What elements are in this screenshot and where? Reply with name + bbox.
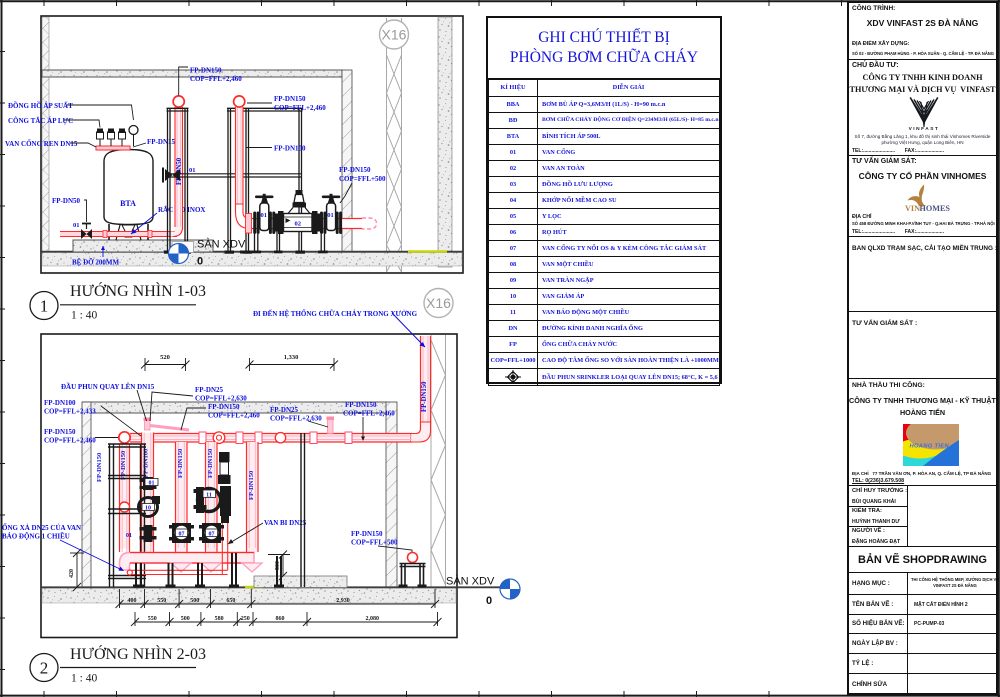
svg-text:520: 520 — [160, 354, 170, 361]
svg-text:01: 01 — [126, 533, 132, 539]
svg-text:500: 500 — [181, 616, 190, 622]
svg-text:VIN: VIN — [905, 204, 920, 213]
svg-text:COP=FFL+2,433: COP=FFL+2,433 — [44, 408, 96, 416]
svg-text:1 : 40: 1 : 40 — [71, 310, 97, 322]
svg-text:HOANG TIEN: HOANG TIEN — [910, 444, 950, 450]
svg-text:SÀN XDV: SÀN XDV — [197, 238, 246, 251]
svg-text:HOMES: HOMES — [920, 204, 951, 213]
svg-text:550: 550 — [148, 616, 157, 622]
svg-text:VAN CỔNG REN DN15: VAN CỔNG REN DN15 — [5, 140, 78, 148]
svg-text:FP-DN150: FP-DN150 — [248, 471, 255, 500]
svg-text:BÁO ĐỘNG 1 CHIỀU: BÁO ĐỘNG 1 CHIỀU — [2, 533, 70, 541]
svg-text:FP-DN15: FP-DN15 — [147, 138, 175, 146]
svg-text:400: 400 — [128, 598, 137, 604]
svg-text:COP=FFL+2,460: COP=FFL+2,460 — [274, 104, 326, 112]
svg-text:1 : 40: 1 : 40 — [71, 673, 97, 685]
svg-text:500: 500 — [275, 561, 281, 570]
svg-text:FP-DN150: FP-DN150 — [207, 449, 214, 478]
svg-text:2,080: 2,080 — [366, 616, 380, 622]
svg-text:ĐẦU PHUN QUAY LÊN DN15: ĐẦU PHUN QUAY LÊN DN15 — [61, 383, 155, 391]
svg-text:1: 1 — [40, 297, 49, 316]
svg-text:FP-DN25: FP-DN25 — [195, 386, 223, 394]
svg-text:FP-DN25: FP-DN25 — [270, 406, 298, 414]
svg-text:ỐNG XẢ DN25 CỦA VAN: ỐNG XẢ DN25 CỦA VAN — [2, 524, 81, 532]
svg-text:420: 420 — [69, 569, 75, 578]
svg-text:01: 01 — [189, 167, 196, 174]
svg-text:HƯỚNG NHÌN 2-03: HƯỚNG NHÌN 2-03 — [70, 644, 206, 663]
svg-text:COP=FFL+2,460: COP=FFL+2,460 — [190, 75, 242, 83]
svg-text:01: 01 — [149, 481, 155, 487]
svg-text:0: 0 — [486, 595, 492, 607]
svg-text:COP=FFL+2,460: COP=FFL+2,460 — [44, 437, 96, 445]
svg-text:BTA: BTA — [120, 199, 136, 208]
svg-text:ĐỒNG HỒ ÁP SUẤT: ĐỒNG HỒ ÁP SUẤT — [8, 102, 73, 110]
svg-text:COP=FFL+2,460: COP=FFL+2,460 — [208, 412, 260, 420]
svg-text:860: 860 — [276, 616, 285, 622]
svg-text:COP=FFL+500: COP=FFL+500 — [351, 539, 398, 547]
svg-text:02: 02 — [295, 221, 302, 228]
svg-text:FP-DN150: FP-DN150 — [177, 449, 184, 478]
svg-text:550: 550 — [157, 598, 166, 604]
svg-text:2,930: 2,930 — [336, 598, 350, 604]
svg-text:1,330: 1,330 — [284, 354, 299, 361]
svg-text:HƯỚNG NHÌN 1-03: HƯỚNG NHÌN 1-03 — [70, 281, 206, 300]
svg-text:07: 07 — [209, 532, 215, 538]
svg-text:BỆ ĐỠ 200MM: BỆ ĐỠ 200MM — [72, 259, 119, 267]
svg-text:FP-DN100: FP-DN100 — [44, 399, 76, 407]
svg-text:X16: X16 — [382, 27, 407, 43]
svg-text:FP-DN100: FP-DN100 — [143, 449, 150, 478]
svg-text:580: 580 — [215, 616, 224, 622]
svg-text:FP-DN150: FP-DN150 — [351, 530, 383, 538]
svg-text:VINFAST: VINFAST — [909, 126, 940, 131]
svg-text:01: 01 — [327, 212, 334, 219]
svg-text:01: 01 — [261, 212, 268, 219]
svg-text:COP=FFL+2,630: COP=FFL+2,630 — [270, 415, 322, 423]
svg-text:COP=FFL+2,630: COP=FFL+2,630 — [195, 395, 247, 403]
svg-text:X16: X16 — [426, 295, 451, 311]
svg-text:FP-DN150: FP-DN150 — [96, 453, 103, 482]
svg-text:11: 11 — [206, 493, 212, 499]
svg-text:10: 10 — [145, 506, 151, 512]
svg-text:500: 500 — [190, 598, 199, 604]
svg-text:250: 250 — [241, 616, 250, 622]
svg-text:CÔNG TẮC ÁP LỰC: CÔNG TẮC ÁP LỰC — [8, 117, 73, 125]
svg-text:FP-DN150: FP-DN150 — [345, 401, 377, 409]
svg-text:07: 07 — [179, 532, 185, 538]
svg-text:2: 2 — [40, 659, 49, 678]
svg-text:FP-DN150: FP-DN150 — [190, 67, 222, 75]
svg-text:FP-DN150: FP-DN150 — [339, 166, 371, 174]
svg-text:0: 0 — [197, 256, 203, 268]
svg-text:COP=FFL+2,460: COP=FFL+2,460 — [343, 410, 395, 418]
svg-text:650: 650 — [226, 598, 235, 604]
svg-text:FP-DN150: FP-DN150 — [421, 381, 428, 412]
svg-text:FP-DN50: FP-DN50 — [52, 197, 80, 205]
svg-text:FP-DN150: FP-DN150 — [274, 145, 306, 153]
svg-text:01: 01 — [73, 222, 80, 229]
svg-text:FP-DN150: FP-DN150 — [44, 428, 76, 436]
svg-text:COP=FFL+500: COP=FFL+500 — [339, 175, 386, 183]
svg-text:FP-DN150: FP-DN150 — [274, 95, 306, 103]
svg-text:FP-DN150: FP-DN150 — [208, 403, 240, 411]
svg-text:SÀN XDV: SÀN XDV — [446, 575, 495, 588]
